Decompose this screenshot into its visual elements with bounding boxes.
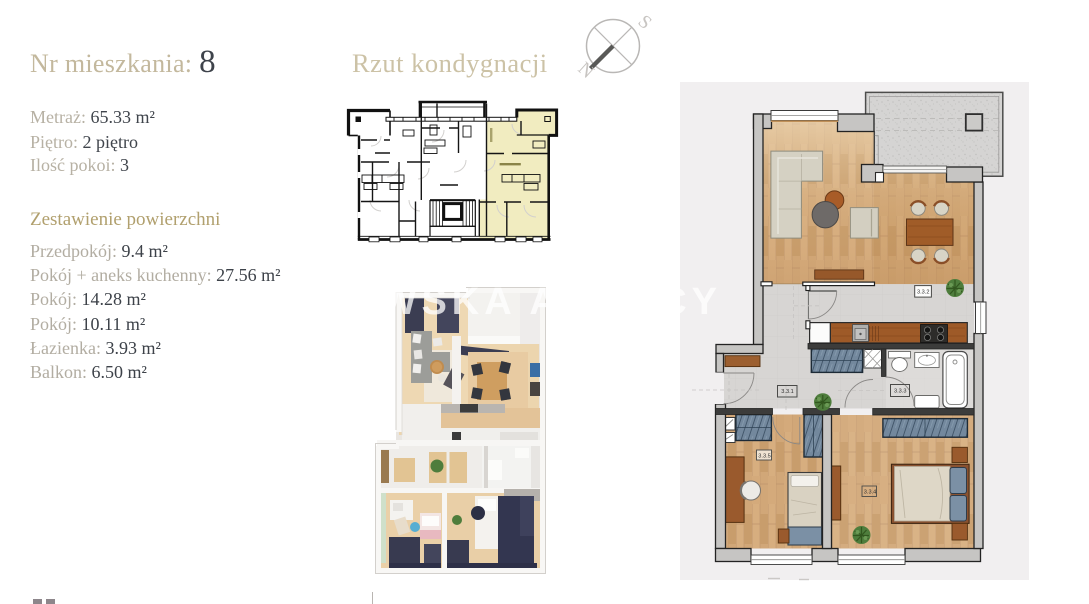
- svg-text:3.3.2: 3.3.2: [917, 289, 929, 295]
- svg-text:3.3.1: 3.3.1: [781, 389, 793, 395]
- svg-text:3.3.5: 3.3.5: [758, 453, 770, 459]
- svg-text:S: S: [634, 11, 656, 34]
- svg-text:3.3.3: 3.3.3: [894, 389, 906, 395]
- svg-text:3.3.4: 3.3.4: [864, 490, 876, 496]
